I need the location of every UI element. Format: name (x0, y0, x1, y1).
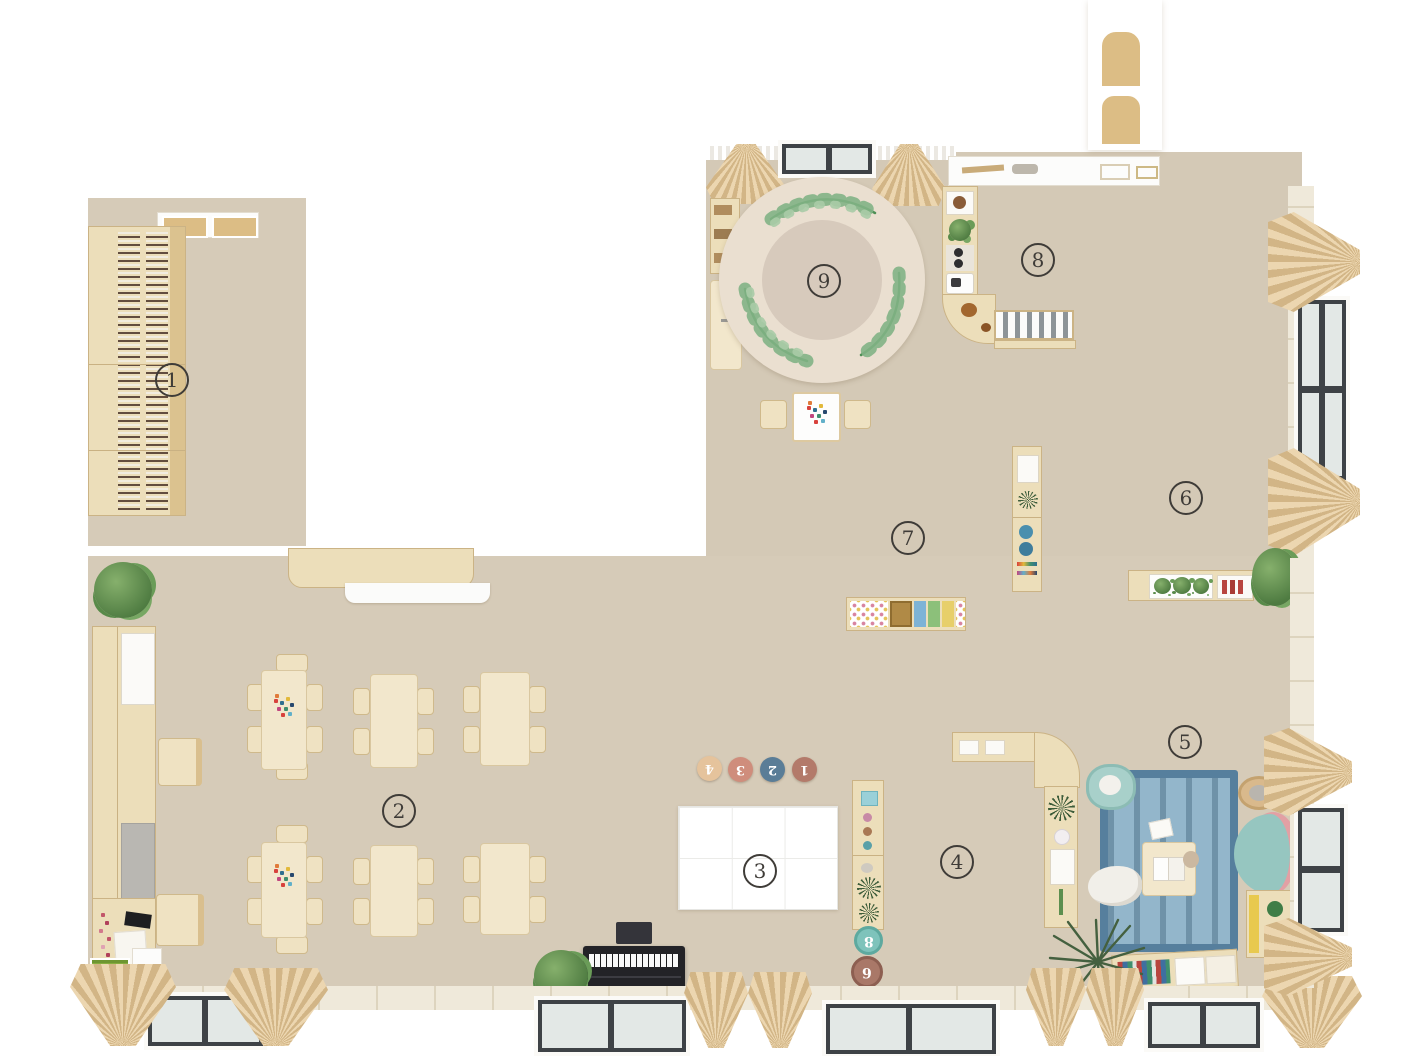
zone4-item-brown (863, 827, 872, 836)
piano-music-stand (616, 922, 652, 944)
zone4-item-stone (861, 863, 873, 873)
stove-burner-2 (954, 259, 963, 268)
play-bread-1 (961, 303, 977, 317)
bottom-window-4 (1148, 1002, 1260, 1048)
basket-chair-plush (1099, 775, 1121, 795)
zone-marker-9: 9 (807, 264, 841, 298)
shelf-color-tablets-1 (1017, 562, 1037, 566)
planter-plant-1 (1154, 578, 1171, 594)
t3-chair-l1 (463, 686, 480, 713)
play-kitchen-bowl (953, 196, 966, 209)
cutoff-table-white-top (345, 583, 490, 603)
t6-chair-r2 (529, 896, 546, 923)
t5-chair-l1 (353, 858, 370, 885)
shelf-divider (1013, 517, 1041, 518)
montessori-shelf-horizontal (846, 597, 966, 631)
zone-marker-6: 6 (1169, 481, 1203, 515)
play-kitchen-stove (946, 245, 974, 271)
stool-8-label: 8 (864, 933, 874, 949)
shelf-plant-small (1018, 491, 1038, 509)
shelf-ball-2 (1019, 542, 1033, 556)
teacher-chair-1 (158, 738, 202, 786)
piano-lid-line-1 (587, 976, 681, 978)
floor-cushion-1: 1 (792, 757, 817, 782)
tray-small-beads (956, 601, 965, 627)
shelf-tray-white (1017, 455, 1039, 483)
red-book-3 (1238, 580, 1243, 594)
floor-cushion-3: 3 (728, 757, 753, 782)
zone4-green-stick (1059, 889, 1063, 915)
play-kitchen-picture (946, 191, 974, 215)
table-4 (261, 842, 307, 938)
zone4-shelf-divider (853, 855, 883, 856)
right-window-upper-mullion (1319, 304, 1325, 476)
tray-blue (914, 601, 926, 627)
t1-chair-r2 (306, 726, 323, 753)
table-4-art-supplies (274, 869, 278, 873)
door-arch-window-2 (1098, 92, 1144, 148)
t4-chair-r2 (306, 898, 323, 925)
nature-shelf-books (1217, 575, 1253, 599)
zone4-card-1 (959, 740, 979, 755)
t4-chair-top (276, 825, 308, 843)
number-stool-8: 8 (854, 926, 883, 955)
t3-chair-r2 (529, 726, 546, 753)
cabinet-gray-panel (121, 823, 155, 905)
cubby-divider-2 (89, 450, 185, 451)
cushion-4-label: 4 (705, 761, 714, 776)
zone4-shelf-top (952, 732, 1038, 762)
stool-6-label: 6 (862, 964, 872, 980)
zone4-plant-1 (857, 877, 881, 899)
zone4-card-2 (985, 740, 1005, 755)
bottom-window-2 (538, 1000, 686, 1052)
play-bread-2 (981, 323, 991, 332)
curtain-bottom-3a (684, 972, 748, 1048)
curtain-bottom-4b (1086, 968, 1144, 1046)
cushion-2-label: 2 (768, 762, 777, 777)
small-table-toys (807, 406, 811, 410)
planter-plant-2 (1173, 577, 1191, 594)
top-window (782, 144, 872, 174)
table-1 (261, 670, 307, 770)
t3-chair-l2 (463, 726, 480, 753)
floor-plan: 4 3 2 1 8 6 (0, 0, 1415, 1056)
stove-burner-1 (954, 248, 963, 257)
teacher-chair-2 (156, 894, 204, 946)
tray-beads (850, 601, 888, 627)
counter-item (1012, 164, 1038, 174)
t2-chair-l1 (353, 688, 370, 715)
planter-plant-3 (1193, 578, 1209, 594)
small-table-chair-left (760, 400, 787, 429)
zone4-plant-2 (859, 903, 879, 923)
cubby-items-column-1 (118, 232, 140, 510)
table-2 (370, 674, 418, 768)
book-display-bin-1 (1174, 956, 1205, 986)
bottom-window-3-mullion (906, 1008, 912, 1050)
zone-marker-8: 8 (1021, 243, 1055, 277)
door-arch-window-1 (1098, 28, 1144, 90)
t5-chair-l2 (353, 898, 370, 925)
zone4-tray (1050, 849, 1075, 885)
keyboard (124, 911, 152, 928)
zone4-shelf-left (852, 780, 884, 930)
cutoff-table (288, 548, 474, 588)
basket-chair (1086, 764, 1136, 810)
t6-chair-l2 (463, 896, 480, 923)
t3-chair-r1 (529, 686, 546, 713)
floor-cushion-2: 2 (760, 757, 785, 782)
right-window-lower (1298, 808, 1344, 932)
book-display-bin-2 (1205, 955, 1236, 985)
tray-green (928, 601, 940, 627)
bottom-window-3 (826, 1004, 996, 1054)
montessori-shelf-vertical (1012, 446, 1042, 592)
t2-chair-l2 (353, 728, 370, 755)
play-kitchen-counter (942, 186, 978, 296)
right-window-upper (1298, 300, 1346, 480)
top-window-mullion (826, 148, 832, 170)
counter-tray-2 (1136, 166, 1158, 179)
bottom-window-2-mullion (608, 1004, 614, 1048)
t1-chair-r1 (306, 684, 323, 711)
play-cube-yellow-strip (1249, 895, 1259, 953)
table-3 (480, 672, 530, 766)
play-kitchen-sink (946, 273, 974, 294)
zone4-ball-white (1054, 829, 1070, 845)
floor-cushion-4: 4 (697, 756, 722, 781)
nature-shelf (1128, 570, 1254, 601)
piano-keys (589, 954, 679, 967)
curtain-right-2 (1268, 448, 1360, 556)
t5-chair-r2 (417, 898, 434, 925)
zone4-plant-spiky (1048, 795, 1075, 821)
right-window-lower-bar (1302, 866, 1340, 873)
cabinet-white-panel (121, 633, 155, 705)
shelf-ball-1 (1019, 525, 1033, 539)
tray-yellow (942, 601, 954, 627)
zone4-item-blue (861, 791, 878, 806)
t4-chair-r1 (306, 856, 323, 883)
red-book-1 (1222, 580, 1227, 594)
reading-table (1142, 842, 1196, 896)
play-kitchen-rack (994, 310, 1074, 340)
curtain-bottom-3b (748, 972, 812, 1048)
curtain-right-1 (1268, 212, 1360, 312)
table-5 (370, 845, 418, 937)
curtain-bottom-4a (1026, 968, 1086, 1046)
zone-marker-4: 4 (940, 845, 974, 879)
potted-plant-top-left (94, 562, 152, 618)
cushion-1-label: 1 (800, 762, 809, 777)
sheep-plush (1088, 866, 1142, 906)
t6-chair-r1 (529, 856, 546, 883)
zone-marker-1: 1 (155, 363, 189, 397)
play-kitchen-rack-base (994, 340, 1076, 349)
tray-wood-grid (890, 601, 912, 627)
play-kitchen-plant (949, 219, 971, 241)
small-activity-table (792, 392, 841, 442)
zone-marker-2: 2 (382, 794, 416, 828)
table-1-art-supplies (274, 699, 278, 703)
zone-marker-3: 3 (743, 854, 777, 888)
zone-marker-5: 5 (1168, 725, 1202, 759)
sink-faucet (951, 278, 961, 287)
t5-chair-r1 (417, 858, 434, 885)
skylight-pane-right (212, 216, 258, 238)
small-table-chair-right (844, 400, 871, 429)
t2-chair-r2 (417, 728, 434, 755)
table-6 (480, 843, 530, 935)
bottom-window-1-mullion (202, 1000, 208, 1042)
bottom-window-4-mullion (1200, 1006, 1206, 1044)
curtain-right-3 (1264, 728, 1352, 816)
play-cube-green-1 (1267, 901, 1283, 917)
planter-box (1149, 574, 1213, 599)
t4-chair-bottom (276, 936, 308, 954)
t2-chair-r1 (417, 688, 434, 715)
counter-tray-1 (1100, 164, 1130, 180)
number-stool-6: 6 (851, 956, 883, 988)
cabinet-divider (117, 627, 118, 903)
cushion-3-label: 3 (736, 762, 745, 777)
zone4-item-teal (863, 841, 872, 850)
t6-chair-l1 (463, 856, 480, 883)
desk-flowers (101, 913, 105, 917)
shelf-color-tablets-2 (1017, 571, 1037, 575)
teacher-cabinet (92, 626, 156, 904)
zone-marker-7: 7 (891, 521, 925, 555)
teddy-plush (1183, 851, 1199, 868)
zone4-shelf-right (1044, 786, 1078, 928)
red-book-2 (1230, 580, 1235, 594)
zone4-item-pink (863, 813, 872, 822)
